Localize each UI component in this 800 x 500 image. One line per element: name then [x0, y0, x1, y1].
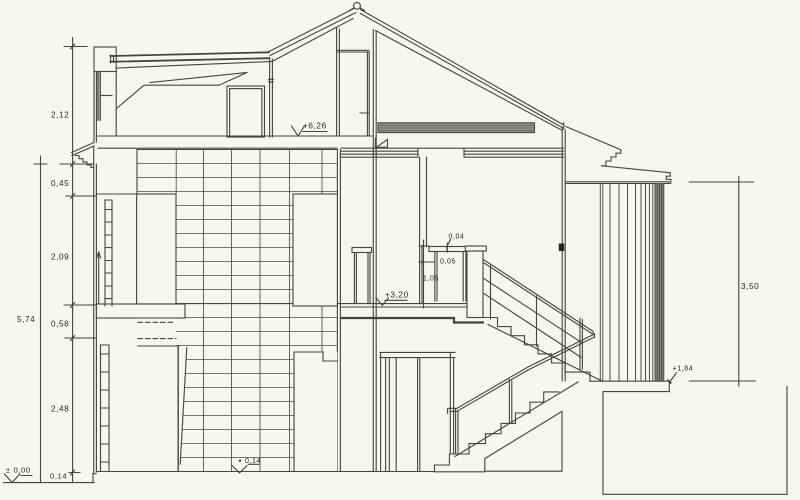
- svg-text:+3,20: +3,20: [385, 291, 409, 300]
- svg-text:+1,84: +1,84: [673, 366, 694, 373]
- svg-text:3,50: 3,50: [741, 282, 759, 291]
- svg-text:2,48: 2,48: [51, 405, 69, 414]
- svg-text:5,74: 5,74: [17, 315, 35, 324]
- svg-text:0,58: 0,58: [51, 320, 69, 329]
- svg-text:+6,26: +6,26: [303, 122, 327, 131]
- svg-text:2,12: 2,12: [51, 111, 69, 120]
- svg-text:0,05: 0,05: [440, 259, 456, 266]
- svg-text:0,45: 0,45: [51, 179, 69, 188]
- svg-text:1,05: 1,05: [423, 276, 439, 283]
- svg-text:2,09: 2,09: [51, 253, 69, 262]
- svg-text:0,04: 0,04: [449, 234, 465, 241]
- svg-text:0,14: 0,14: [245, 458, 261, 465]
- svg-text:0,14: 0,14: [50, 472, 67, 481]
- svg-text:± 0,00: ± 0,00: [6, 466, 31, 475]
